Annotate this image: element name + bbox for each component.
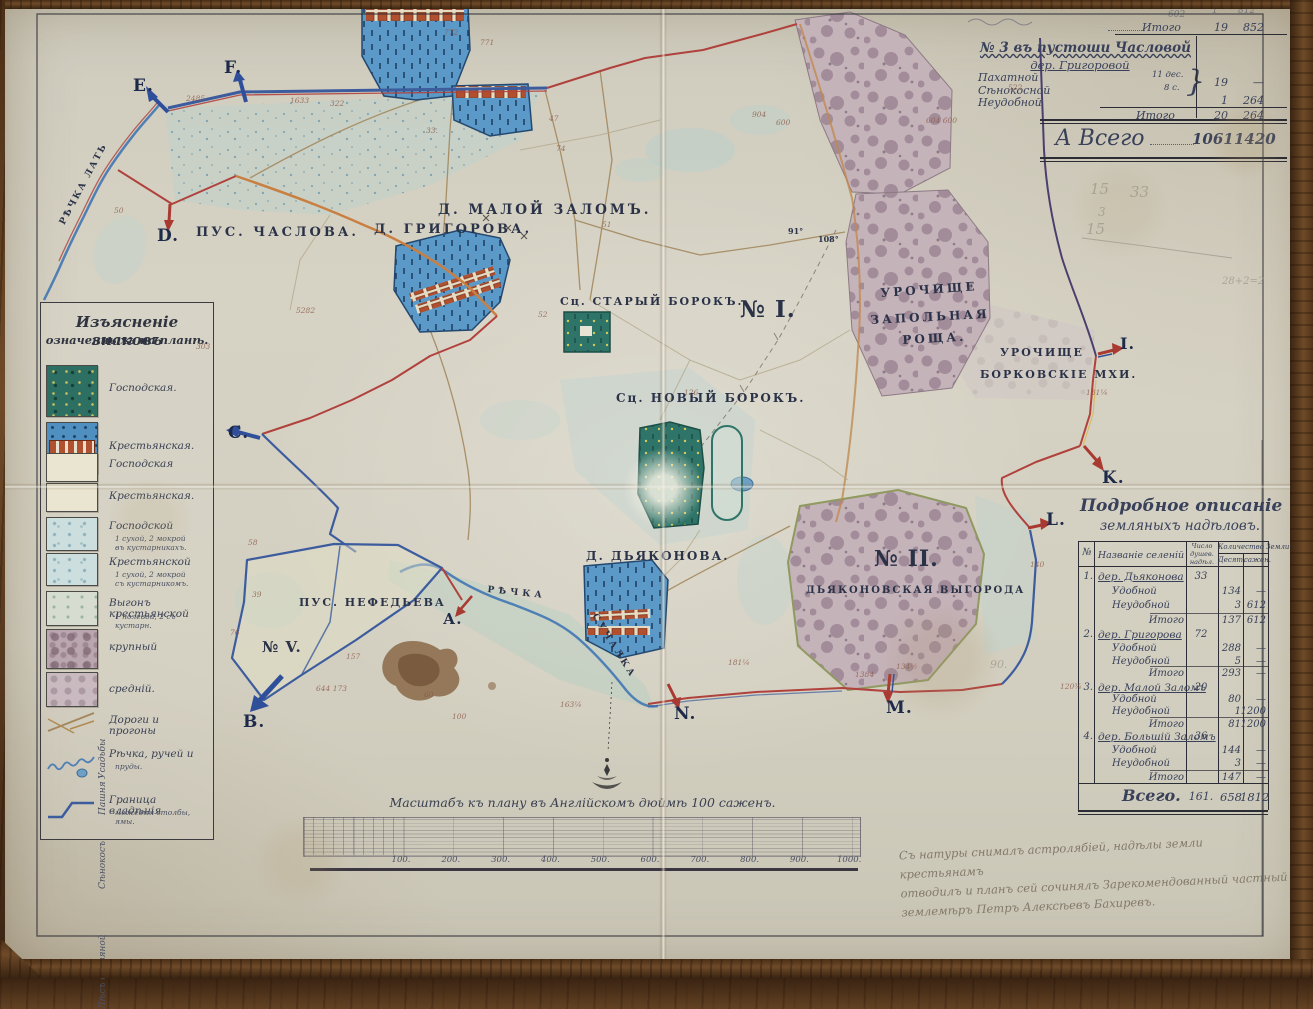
village-dyakonova: [584, 560, 668, 658]
map-sheet-scan: Изъясненіе знаковъ означенныхъ на планѣ.…: [0, 0, 1313, 978]
table-wood-edge: [0, 0, 1313, 9]
table-wood-edge: [1290, 0, 1313, 978]
paper-sheet: Изъясненіе знаковъ означенныхъ на планѣ.…: [0, 0, 1313, 978]
garden-oval: [712, 426, 742, 520]
table-wood-edge: [0, 0, 5, 978]
roads: [250, 10, 845, 592]
ink-stain: [382, 641, 496, 701]
pencil-underline: [1082, 238, 1232, 258]
cursive-squiggle: [968, 19, 1032, 25]
manor-court: [580, 326, 592, 336]
table-wood-edge: [0, 959, 1313, 978]
forest-areas: [788, 12, 990, 690]
map-drawing: [0, 0, 1313, 978]
manor-novy-borok: [638, 422, 704, 528]
house-row: [588, 626, 650, 635]
